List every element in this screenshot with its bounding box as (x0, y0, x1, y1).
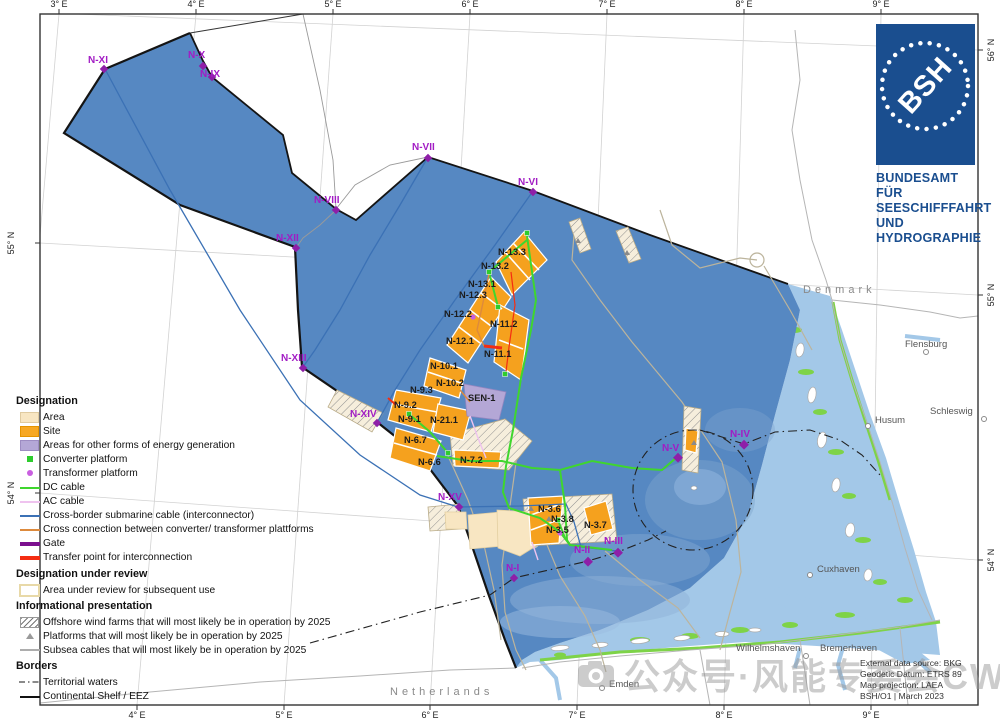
site-label: N-6.7 (404, 435, 427, 445)
legend-item: Area under review for subsequent use (16, 583, 330, 597)
converter-platform-icon (16, 456, 43, 462)
other-energy-swatch (16, 440, 43, 451)
gate-label: N-VI (518, 177, 538, 188)
legend-item: Gate (16, 537, 330, 551)
city-label: Cuxhaven (817, 564, 860, 575)
windfarm-2025-swatch (16, 617, 43, 628)
axis-tick-label: 55° N (6, 232, 16, 255)
axis-tick-label: 4° E (187, 0, 204, 9)
site-label: N-13.3 (498, 247, 526, 257)
map-credits: External data source: BKG Geodetic Datum… (860, 658, 992, 702)
axis-tick-label: 3° E (50, 0, 67, 9)
legend-item: Offshore wind farms that will most likel… (16, 615, 330, 629)
site-label: N-7.2 (460, 455, 483, 465)
gate-label: N-XI (88, 55, 108, 66)
city-label: Flensburg (905, 339, 947, 350)
axis-tick-label: 5° E (324, 0, 341, 9)
gate-swatch (16, 542, 43, 546)
site-label: N-9.2 (394, 400, 417, 410)
city-label: Emden (609, 679, 639, 690)
bsh-logo: BSH BUNDESAMT FÜR SEESCHIFFFAHRT UND HYD… (876, 24, 980, 246)
gate-label: N-VII (412, 142, 435, 153)
map-page: N-13.3 N-13.2 N-13.1 N-12.3 N-12.2 N-11.… (0, 0, 1000, 720)
legend-item: Area (16, 410, 330, 424)
legend-item: Subsea cables that will most likely be i… (16, 643, 330, 657)
axis-tick-label: 6° E (421, 710, 438, 720)
site-label: N-9.3 (410, 385, 433, 395)
site-label: N-10.2 (436, 378, 464, 388)
legend-item: AC cable (16, 495, 330, 509)
legend-item: Converter platform (16, 452, 330, 466)
city-label: Schleswig (930, 406, 973, 417)
bsh-org-name: BUNDESAMT FÜR SEESCHIFFFAHRT UND HYDROGR… (876, 171, 980, 246)
site-label: N-10.1 (430, 361, 458, 371)
legend-item: Continental Shelf / EEZ (16, 690, 330, 704)
site-label: N-3.6 (538, 504, 561, 514)
gate-label: N-X (188, 50, 206, 61)
site-label: N-3.8 (551, 514, 574, 524)
axis-tick-label: 7° E (568, 710, 585, 720)
territorial-waters-swatch (16, 679, 43, 685)
legend-item: Cross-border submarine cable (interconne… (16, 509, 330, 523)
gate-label: N-XV (438, 492, 462, 503)
transformer-platform-icon (16, 470, 43, 476)
axis-tick-label: 4° E (128, 710, 145, 720)
site-label: N-3.5 (546, 525, 569, 535)
axis-tick-label: 5° E (275, 710, 292, 720)
site-label: N-6.6 (418, 457, 441, 467)
gate-label: N-XII (276, 233, 299, 244)
legend-item: Territorial waters (16, 675, 330, 689)
site-label: N-12.3 (459, 290, 487, 300)
gate-label: N-II (574, 545, 590, 556)
axis-tick-label: 54° N (986, 549, 996, 572)
region-label-netherlands: Netherlands (390, 686, 493, 698)
legend-section-title: Designation under review (16, 568, 330, 583)
axis-tick-label: 9° E (862, 710, 879, 720)
site-label: SEN-1 (468, 393, 495, 403)
axis-tick-label: 55° N (986, 284, 996, 307)
site-label: N-3.7 (584, 520, 607, 530)
ac-cable-swatch (16, 501, 43, 503)
region-label-denmark: Denmark (803, 284, 876, 296)
interconnector-swatch (16, 515, 43, 517)
city-label: Wilhelmshaven (736, 643, 800, 654)
legend-section-title: Designation (16, 395, 330, 410)
eez-border-swatch (16, 696, 43, 698)
site-label: N-21.1 (430, 415, 458, 425)
site-label: N-11.1 (484, 349, 511, 359)
area-under-review-swatch (16, 584, 43, 597)
site-label: N-11.2 (490, 319, 517, 329)
subsea-cable-2025-swatch (16, 649, 43, 651)
legend-item: DC cable (16, 480, 330, 494)
gate-label: N-V (662, 443, 680, 454)
gate-label: N-I (506, 563, 520, 574)
site-label: N-13.1 (468, 279, 496, 289)
site-label: N-12.2 (444, 309, 472, 319)
site-label: N-13.2 (481, 261, 509, 271)
gate-label: N-VIII (314, 195, 340, 206)
area-swatch (16, 412, 43, 423)
city-label: Husum (875, 415, 905, 426)
bsh-logo-square: BSH (876, 24, 975, 165)
axis-tick-label: 54° N (6, 482, 16, 505)
platform-2025-icon (16, 633, 43, 639)
legend-item: Site (16, 424, 330, 438)
cross-connection-swatch (16, 529, 43, 531)
legend-section-title: Borders (16, 660, 330, 675)
gate-label: N-IV (730, 429, 750, 440)
dc-cable-swatch (16, 487, 43, 489)
axis-tick-label: 7° E (598, 0, 615, 9)
legend-item: Cross connection between converter/ tran… (16, 523, 330, 537)
axis-tick-label: 6° E (461, 0, 478, 9)
legend-section-title: Informational presentation (16, 600, 330, 615)
legend-item: Areas for other forms of energy generati… (16, 438, 330, 452)
site-swatch (16, 426, 43, 437)
axis-tick-label: 8° E (735, 0, 752, 9)
legend: Designation Area Site Areas for other fo… (16, 392, 330, 704)
gate-label: N-XIV (350, 409, 377, 420)
axis-tick-label: 8° E (715, 710, 732, 720)
axis-tick-label: 9° E (872, 0, 889, 9)
legend-item: Transformer platform (16, 466, 330, 480)
site-label: N-9.1 (398, 414, 421, 424)
gate-label: N-XIII (281, 353, 307, 364)
transfer-point-swatch (16, 556, 43, 560)
city-label: Bremerhaven (820, 643, 877, 654)
site-label: N-12.1 (446, 336, 474, 346)
gate-label: N-III (604, 536, 623, 547)
axis-tick-label: 56° N (986, 39, 996, 62)
legend-item: Platforms that will most likely be in op… (16, 629, 330, 643)
legend-item: Transfer point for interconnection (16, 551, 330, 565)
gate-label: N-IX (200, 69, 220, 80)
